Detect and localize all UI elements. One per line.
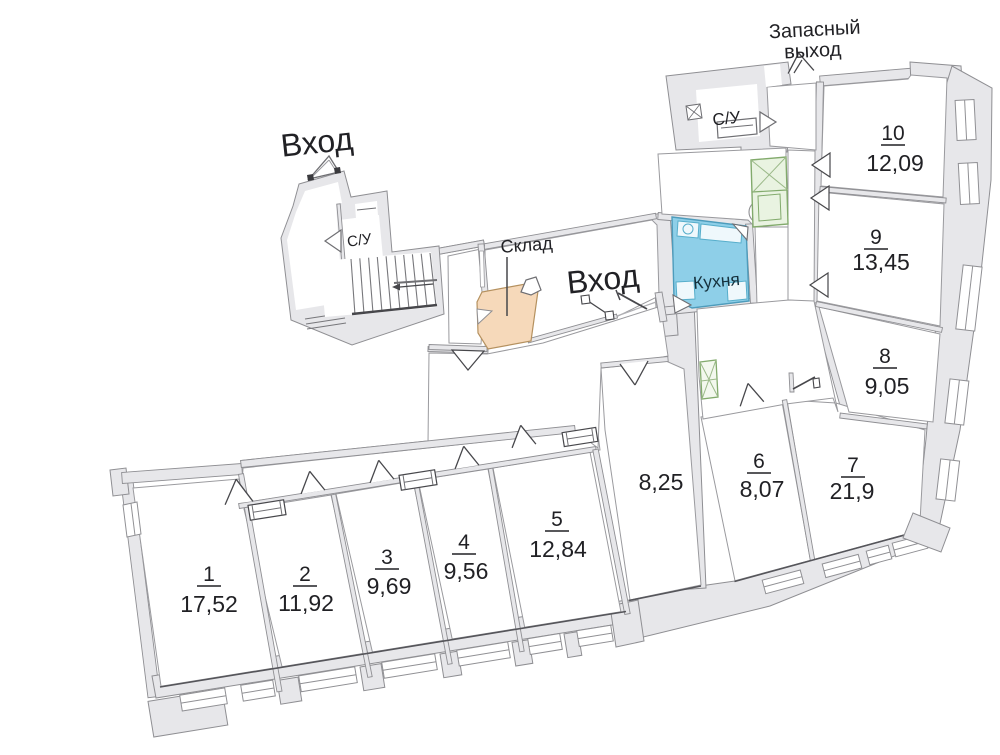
svg-text:8,25: 8,25 (639, 469, 684, 495)
svg-text:5: 5 (551, 508, 563, 531)
svg-text:8: 8 (879, 345, 891, 368)
svg-text:4: 4 (458, 531, 470, 554)
svg-text:Склад: Склад (500, 233, 554, 257)
svg-text:1: 1 (203, 563, 215, 586)
svg-text:11,92: 11,92 (278, 590, 334, 616)
svg-text:9,05: 9,05 (865, 373, 910, 399)
svg-text:3: 3 (381, 546, 393, 569)
svg-text:2: 2 (299, 563, 311, 586)
svg-text:9: 9 (870, 226, 882, 249)
svg-text:С/У: С/У (346, 230, 373, 250)
svg-text:С/У: С/У (712, 108, 742, 130)
svg-text:6: 6 (753, 450, 765, 473)
svg-text:13,45: 13,45 (852, 249, 910, 275)
svg-text:12,84: 12,84 (529, 536, 587, 562)
svg-text:7: 7 (847, 454, 859, 477)
svg-text:9,69: 9,69 (367, 573, 412, 599)
svg-text:17,52: 17,52 (180, 591, 238, 617)
svg-text:Вход: Вход (565, 257, 641, 300)
svg-text:21,9: 21,9 (830, 478, 875, 504)
svg-text:Вход: Вход (279, 120, 355, 163)
svg-text:10: 10 (881, 122, 904, 145)
svg-text:выход: выход (784, 39, 843, 64)
svg-text:8,07: 8,07 (740, 476, 785, 502)
svg-text:9,56: 9,56 (444, 558, 489, 584)
svg-text:12,09: 12,09 (866, 150, 924, 176)
svg-text:Кухня: Кухня (692, 269, 740, 293)
